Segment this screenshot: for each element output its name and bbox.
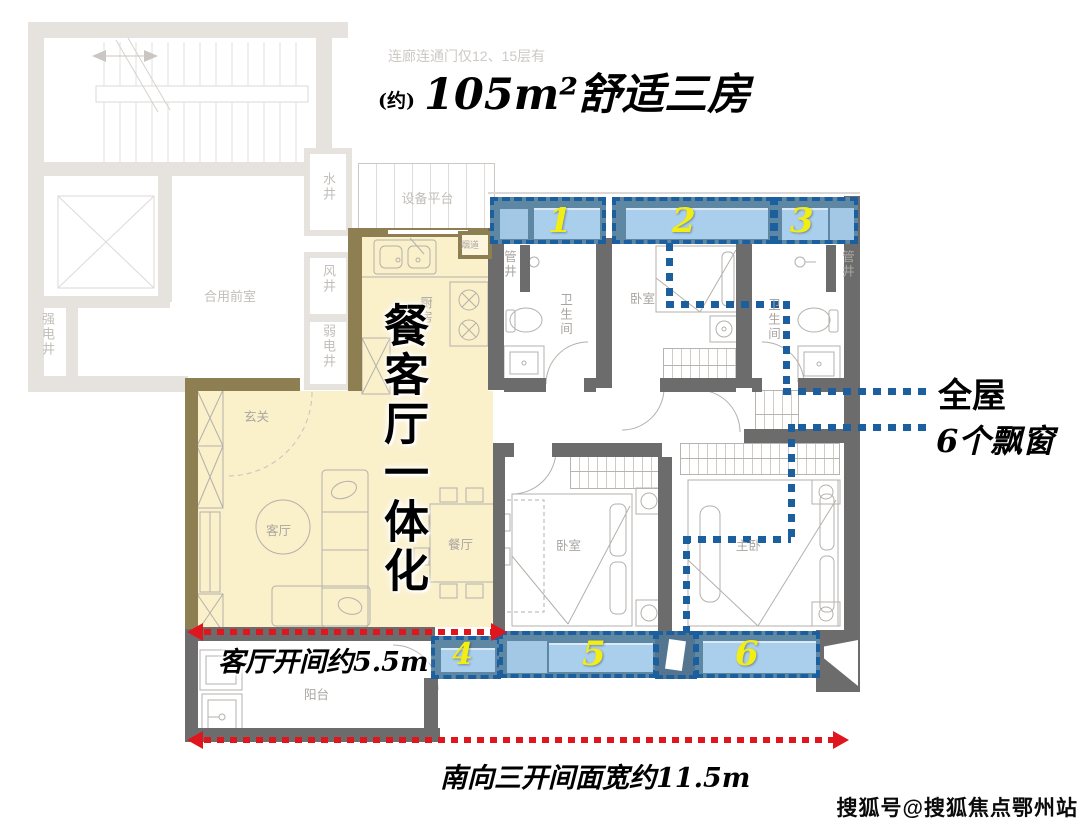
room-label-equipment: 设备平台: [370, 188, 485, 207]
wall: [185, 641, 198, 742]
wall: [552, 443, 662, 457]
wall: [658, 457, 672, 633]
room-label-dining: 餐厅: [448, 534, 473, 553]
wall: [28, 296, 170, 308]
room-label-balcony: 阳台: [304, 684, 329, 703]
wall: [752, 378, 762, 392]
bay-connector-line: [788, 424, 795, 540]
window-pane: [830, 208, 854, 240]
bedroom-top-furniture: [622, 246, 740, 430]
room-label-bedroom-top: 卧室: [630, 288, 655, 307]
wall: [520, 245, 530, 292]
arrow-head-right: [833, 731, 849, 749]
bay-window-number-6: 6: [735, 634, 759, 674]
wall: [40, 162, 332, 176]
bay-connector-line: [683, 536, 690, 633]
page-title: 105m²舒适三房: [424, 60, 750, 122]
room-label-water-shaft: 水井: [319, 172, 338, 202]
bay-window-number-5: 5: [582, 634, 606, 674]
wall: [66, 302, 78, 388]
bay-connector-line: [666, 243, 673, 305]
room-label-pipe-right: 管井: [838, 250, 857, 279]
living-furniture: [256, 470, 370, 628]
kitchen-window: [388, 230, 468, 234]
window-glass: [626, 208, 768, 239]
wardrobe-bedroom-bottom: [570, 455, 660, 489]
wall: [185, 378, 300, 391]
room-label-wind-shaft: 风井: [319, 264, 338, 294]
bay-connector-line: [783, 301, 790, 391]
bay-window-3: [774, 197, 858, 244]
arrow-head-left: [187, 731, 203, 749]
callout-south-width: 南向三开间面宽约11.5m: [440, 756, 750, 795]
room-label-master: 主卧: [736, 535, 761, 554]
wall: [28, 376, 188, 392]
callout-living-width: 客厅开间约5.5m: [218, 640, 429, 679]
staircase: [92, 38, 308, 166]
wall: [316, 22, 332, 168]
entry-closet: [197, 390, 223, 632]
room-label-living: 客厅: [266, 520, 291, 539]
wall: [424, 678, 438, 742]
room-label-bath-left: 卫生间: [556, 293, 575, 337]
wall: [826, 245, 836, 292]
wall: [504, 378, 546, 392]
wall: [584, 378, 596, 392]
room-label-flue: 烟道: [461, 238, 479, 251]
room-label-strong-elec: 强电井: [38, 312, 57, 357]
bay-window-number-3: 3: [790, 201, 814, 241]
window-pane: [500, 209, 528, 239]
callout-whole-house-line1: 全屋: [938, 368, 1006, 417]
wall: [28, 22, 348, 38]
roofline: [488, 192, 860, 194]
arrow-head-left: [187, 623, 203, 641]
wall: [736, 238, 752, 388]
wall: [504, 443, 514, 457]
elevator: [58, 196, 154, 288]
living-width-arrow: [204, 629, 492, 635]
wall: [158, 176, 172, 302]
bay-connector-line: [798, 424, 933, 431]
wardrobe-master: [680, 443, 840, 475]
wall: [660, 378, 736, 392]
entry-door-arc: [228, 392, 312, 476]
room-label-entry: 玄关: [244, 406, 269, 425]
window-pane: [507, 641, 547, 673]
title-prefix: (约): [378, 86, 415, 113]
watermark: 搜狐号@搜狐焦点鄂州站: [837, 792, 1078, 822]
callout-whole-house-line2: 6个飘窗: [936, 416, 1054, 462]
wall: [185, 378, 198, 629]
room-label-shared-front: 合用前室: [168, 286, 292, 305]
window-glass: [703, 641, 816, 673]
floor-plan-canvas: 1 2 3 4 5 6 合用前室 强电井 水井 风井 弱电井 设备平台 烟道 厨…: [0, 0, 1080, 833]
arrow-head-right: [491, 623, 507, 641]
wall: [493, 443, 505, 635]
wall: [348, 228, 362, 391]
room-label-weak-elec: 弱电井: [319, 324, 338, 369]
bay-window-number-4: 4: [452, 637, 473, 672]
room-label-pipe-left: 管井: [500, 250, 519, 279]
bay-window-number-1: 1: [548, 201, 572, 241]
bay-window-number-2: 2: [672, 201, 696, 241]
room-label-bedroom-bottom: 卧室: [556, 535, 581, 554]
bay-window-5: [499, 631, 657, 678]
bay-connector-line: [783, 388, 933, 395]
floorplan-linework: [0, 0, 1080, 833]
room-label-bath-right: 卫生间: [764, 298, 783, 342]
wall: [596, 238, 612, 388]
callout-integration: 餐客厅一体化: [370, 302, 435, 596]
south-width-arrow: [204, 737, 834, 743]
